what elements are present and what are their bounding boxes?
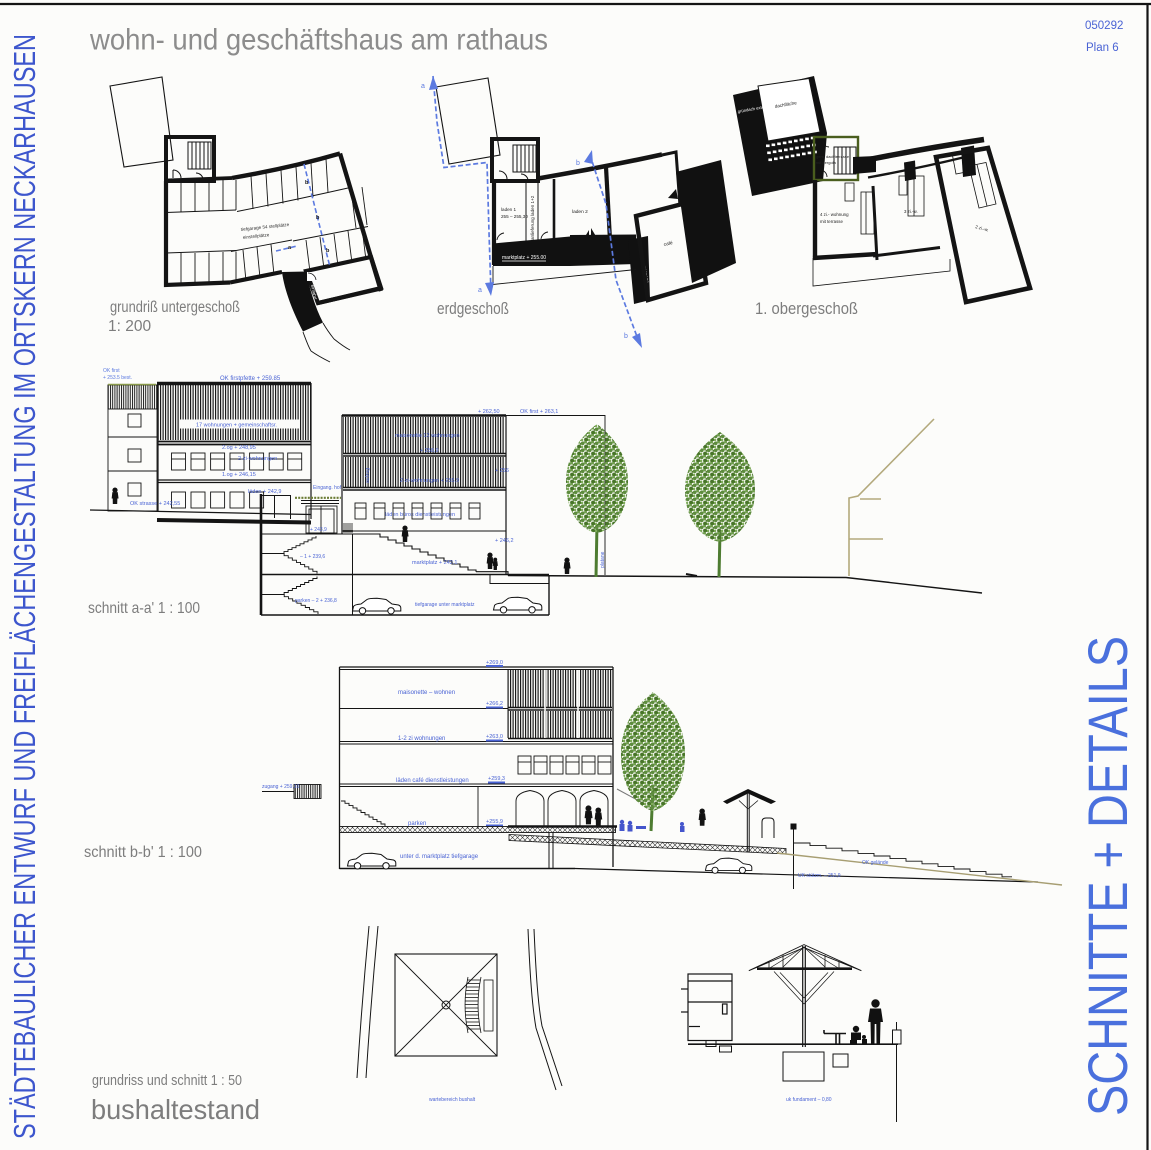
svg-text:bushaltestand: bushaltestand	[91, 1094, 260, 1125]
svg-text:b: b	[326, 248, 330, 254]
svg-text:OK gelände: OK gelände	[862, 860, 889, 866]
svg-text:1. obergeschoß: 1. obergeschoß	[755, 299, 858, 318]
svg-text:2 zi.-w.: 2 zi.-w.	[975, 224, 990, 232]
svg-text:+263,0: +263,0	[486, 734, 503, 740]
svg-text:050292: 050292	[1085, 20, 1123, 32]
svg-text:1-2 zi wohnungen: 1-2 zi wohnungen	[398, 736, 445, 742]
svg-text:mit terrasse: mit terrasse	[820, 219, 843, 224]
svg-text:maisonette 12 wohnungen: maisonette 12 wohnungen	[395, 433, 460, 439]
svg-text:parken – 2 + 236,8: parken – 2 + 236,8	[295, 598, 337, 604]
svg-text:gem. dachterrasse: gem. dachterrasse	[816, 154, 850, 159]
svg-text:café: café	[663, 240, 673, 248]
svg-text:mit pergola: mit pergola	[816, 160, 837, 165]
svg-text:läden büros dienstleistungen: läden büros dienstleistungen	[385, 512, 455, 518]
svg-text:255 – 255,30: 255 – 255,30	[501, 214, 528, 219]
svg-text:+ 243,9: + 243,9	[310, 527, 327, 533]
svg-text:grundriss und schnitt 1 : 50: grundriss und schnitt 1 : 50	[92, 1073, 242, 1089]
svg-text:UK stützm. – 251,9: UK stützm. – 251,9	[798, 873, 841, 879]
svg-text:2-zi-wohnungen: 2-zi-wohnungen	[238, 456, 277, 462]
svg-text:+ 246,2: + 246,2	[495, 538, 514, 544]
svg-text:+255,9: +255,9	[486, 819, 503, 825]
svg-text:wohn- und geschäftshaus am rat: wohn- und geschäftshaus am rathaus	[89, 24, 548, 57]
svg-text:unter d. marktplatz tiefgarag: unter d. marktplatz tiefgarage	[400, 854, 479, 860]
svg-text:schnitt a-a' 1 : 100: schnitt a-a' 1 : 100	[88, 600, 200, 617]
svg-text:+ 258,9: + 258,9	[420, 448, 439, 454]
svg-text:+ 253.5 best.: + 253.5 best.	[103, 375, 132, 381]
svg-text:Eingang. hof: Eingang. hof	[313, 485, 342, 491]
svg-text:erdgeschoß: erdgeschoß	[437, 299, 509, 318]
svg-text:OK firstpfette + 259.85: OK firstpfette + 259.85	[220, 376, 281, 382]
svg-text:läden + 242,9: läden + 242,9	[248, 489, 282, 495]
svg-text:aufzug: aufzug	[365, 468, 371, 483]
svg-text:STÄDTEBAULICHER ENTWURF UND FR: STÄDTEBAULICHER ENTWURF UND FREIFLÄCHENG…	[7, 34, 42, 1139]
svg-text:wartebereich bushalt: wartebereich bushalt	[429, 1097, 476, 1103]
svg-text:Plan 6: Plan 6	[1086, 42, 1119, 54]
svg-text:grundriß untergeschoß: grundriß untergeschoß	[110, 299, 240, 316]
svg-text:SCHNITTE + DETAILS: SCHNITTE + DETAILS	[1076, 636, 1139, 1116]
svg-text:a: a	[478, 287, 482, 294]
svg-text:– 1 + 239,6: – 1 + 239,6	[300, 554, 325, 560]
svg-text:OK first + 263,1: OK first + 263,1	[520, 409, 558, 415]
svg-text:+ 262,50: + 262,50	[478, 409, 500, 415]
svg-text:+266,2: +266,2	[486, 701, 503, 707]
svg-text:b: b	[624, 333, 628, 340]
svg-text:uk fundament – 0,80: uk fundament – 0,80	[786, 1097, 832, 1103]
svg-text:4 zi.- wohnung: 4 zi.- wohnung	[820, 212, 849, 217]
svg-text:einstellplätze: einstellplätze	[243, 232, 270, 240]
svg-text:3 zi.-w.: 3 zi.-w.	[904, 209, 918, 214]
svg-text:schnitt b-b' 1 : 100: schnitt b-b' 1 : 100	[84, 844, 202, 861]
svg-text:a: a	[421, 83, 425, 90]
svg-text:+ 256: + 256	[495, 468, 509, 474]
svg-text:laden 2: laden 2	[572, 209, 588, 215]
svg-text:1: 200: 1: 200	[108, 318, 151, 335]
svg-text:OK first: OK first	[103, 368, 120, 374]
svg-text:läden café dienstleistungen: läden café dienstleistungen	[396, 778, 469, 784]
svg-text:zugang + 259,10: zugang + 259,10	[262, 784, 300, 790]
svg-text:laden 1: laden 1	[501, 207, 517, 212]
svg-text:marktplatz + 242,1: marktplatz + 242,1	[412, 560, 457, 566]
svg-text:b: b	[316, 215, 320, 221]
svg-text:OK strasse + 242,55: OK strasse + 242,55	[130, 501, 180, 507]
svg-text:maisonette – wohnen: maisonette – wohnen	[398, 690, 455, 696]
svg-text:tiefgarage 54 stellplätze: tiefgarage 54 stellplätze	[241, 222, 290, 232]
svg-text:b: b	[576, 160, 580, 167]
svg-text:platane: platane	[600, 551, 606, 568]
svg-text:marktplatz + 255.00: marktplatz + 255.00	[502, 255, 546, 261]
svg-text:1.og + 246,15: 1.og + 246,15	[222, 472, 256, 478]
svg-text:+259,3: +259,3	[488, 776, 505, 782]
svg-text:anlieferung laden 1+2: anlieferung laden 1+2	[530, 195, 535, 240]
svg-text:2-zi-wohnungen + 255,9: 2-zi-wohnungen + 255,9	[400, 478, 459, 484]
svg-text:17 wohnungen + gemeinschafts: 17 wohnungen + gemeinschaftsr.	[196, 423, 277, 429]
svg-text:2.og + 248,95: 2.og + 248,95	[222, 445, 256, 451]
svg-text:tiefgarage unter marktplatz: tiefgarage unter marktplatz	[415, 602, 475, 608]
